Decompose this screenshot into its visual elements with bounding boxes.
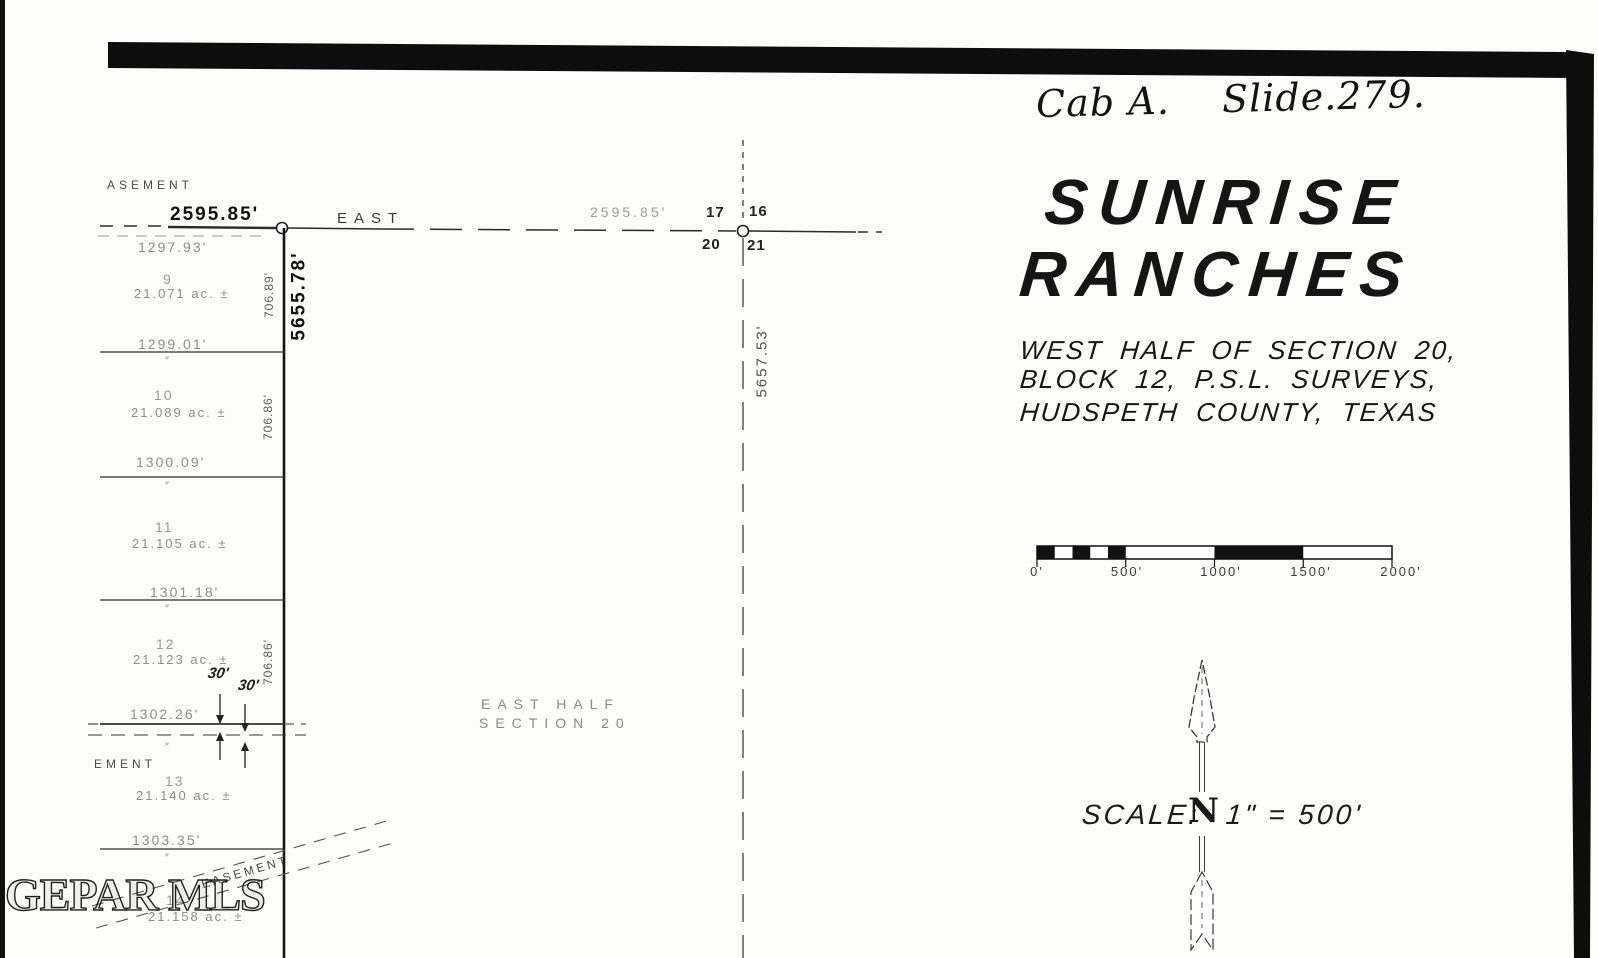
tick-mark: ″ [165, 604, 169, 615]
lot-acreage-11: 21.105 ac. ± [132, 537, 227, 550]
scale-bar-label-2000: 2000' [1380, 565, 1421, 578]
section-number-20: 20 [702, 237, 721, 252]
scan-border-right [1566, 50, 1594, 958]
lot-number-10: 10 [154, 388, 174, 402]
section-number-16: 16 [749, 204, 768, 219]
lot-lines [100, 352, 284, 849]
tick-mark: ″ [165, 853, 169, 864]
plat-title-line2: RANCHES [1017, 242, 1416, 306]
plat-subtitle-line3: HUDSPETH COUNTY, TEXAS [1019, 399, 1439, 425]
north-line-west-dim: 2595.85' [170, 205, 259, 224]
scale-bar-label-0: 0' [1030, 565, 1044, 578]
lot9-depth-dim: 706.89' [263, 272, 275, 318]
lot-number-9: 9 [163, 272, 173, 286]
west-boundary-length: 5655.78' [290, 251, 309, 340]
lot-acreage-9: 21.071 ac. ± [134, 287, 229, 300]
road-width-left-label: 30' [207, 666, 230, 681]
section-corner-monument [738, 226, 749, 237]
width-dim-1297: 1297.93' [138, 240, 207, 254]
section-number-17: 17 [706, 205, 725, 220]
mls-watermark: GEPAR MLS [5, 872, 265, 918]
lot-number-12: 12 [156, 637, 176, 651]
scale-note-label: SCALE: [1081, 801, 1201, 829]
lot12-depth-dim: 706.86' [262, 639, 274, 685]
lot-number-11: 11 [155, 520, 174, 534]
road-width-arrows [216, 694, 249, 768]
north-line-east-dim: 2595.85' [590, 205, 667, 219]
width-dim-1299: 1299.01' [138, 337, 207, 351]
width-dim-1303: 1303.35' [132, 833, 201, 847]
tick-mark: ″ [165, 481, 169, 492]
scale-bar-label-1500: 1500' [1290, 565, 1331, 578]
width-dim-1302: 1302.26' [130, 707, 199, 721]
lot-acreage-13: 21.140 ac. ± [136, 789, 231, 802]
south-easement-label: EMENT [94, 758, 156, 770]
tick-mark: ″ [165, 742, 169, 753]
lot10-depth-dim: 706.86' [262, 394, 274, 440]
interior-label-line1: EAST HALF [481, 697, 620, 711]
scan-bar-top [108, 42, 1572, 78]
lot-acreage-10: 21.089 ac. ± [131, 406, 226, 419]
road-width-right-label: 30' [237, 678, 260, 693]
tick-mark: ″ [165, 356, 169, 367]
north-line-bearing: EAST [337, 211, 404, 226]
scale-bar-label-1000: 1000' [1200, 565, 1241, 578]
interior-label-line2: SECTION 20 [479, 716, 631, 730]
plat-title-line1: SUNRISE [1042, 170, 1409, 234]
scale-bar-label-500: 500' [1111, 565, 1143, 578]
nw-corner-monument [277, 223, 288, 234]
plat-subtitle-line1: WEST HALF OF SECTION 20, [1019, 337, 1459, 363]
width-dim-1301: 1301.18' [150, 585, 219, 599]
north-letter: N [1188, 794, 1219, 828]
lot-number-13: 13 [165, 774, 185, 788]
north-easement-label: ASEMENT [107, 179, 193, 191]
width-dim-1300: 1300.09' [136, 455, 205, 469]
section-number-21: 21 [747, 238, 766, 253]
scale-note-equation: 1" = 500' [1225, 801, 1364, 829]
filing-note: Cab A. Slide.279. [1036, 75, 1427, 123]
scan-border-left [0, 0, 5, 958]
east-boundary-length: 5657.53' [755, 324, 770, 397]
plat-subtitle-line2: BLOCK 12, P.S.L. SURVEYS, [1019, 366, 1440, 392]
plat-scan-page: Cab A. Slide.279. SUNRISE RANCHES WEST H… [0, 0, 1598, 958]
